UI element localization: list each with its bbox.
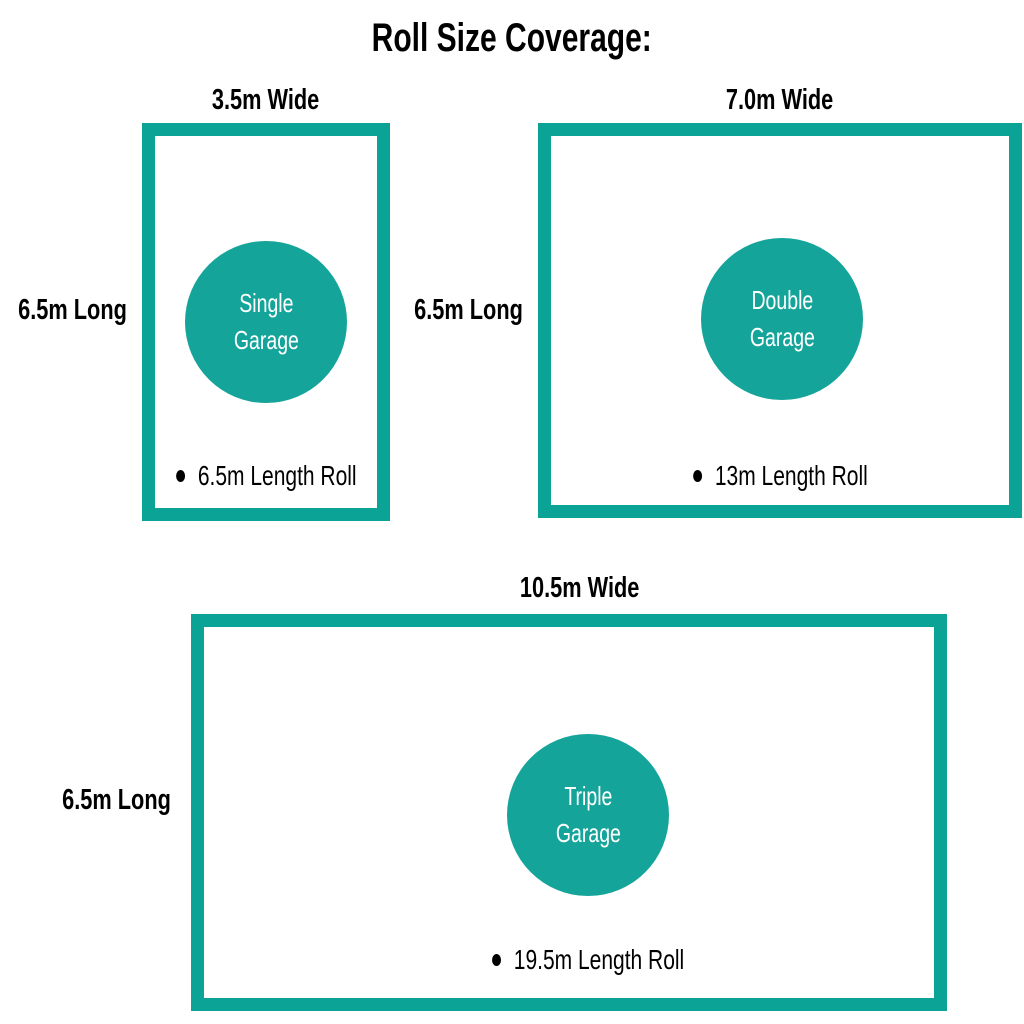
roll-length-item-single: 6.5m Length Roll [142,458,390,494]
bullet-icon [492,954,501,966]
garage-circle-label: Single Garage [233,285,298,359]
roll-size-coverage-infographic: Roll Size Coverage: 3.5m Wide 6.5m Long … [0,0,1024,1024]
length-label-double: 6.5m Long [396,292,528,328]
width-label-double: 7.0m Wide [538,82,1022,118]
roll-length-item-triple: 19.5m Length Roll [210,942,966,978]
roll-length-item-double: 13m Length Roll [538,458,1022,494]
bullet-icon [176,470,185,482]
width-label-single: 3.5m Wide [142,82,390,118]
length-label-single: 6.5m Long [0,292,132,328]
width-label-triple: 10.5m Wide [202,570,958,606]
garage-circle-label: Triple Garage [555,778,620,852]
length-label-triple: 6.5m Long [42,782,192,818]
garage-circle-single: Single Garage [185,241,347,403]
bullet-icon [693,470,702,482]
page-title: Roll Size Coverage: [0,16,1024,61]
garage-circle-triple: Triple Garage [507,734,669,896]
page-title-text: Roll Size Coverage: [372,16,652,61]
garage-circle-double: Double Garage [701,238,863,400]
roll-length-label: 13m Length Roll [714,460,867,492]
roll-length-label: 19.5m Length Roll [514,944,684,976]
garage-circle-label: Double Garage [749,282,814,356]
roll-length-label: 6.5m Length Roll [197,460,356,492]
